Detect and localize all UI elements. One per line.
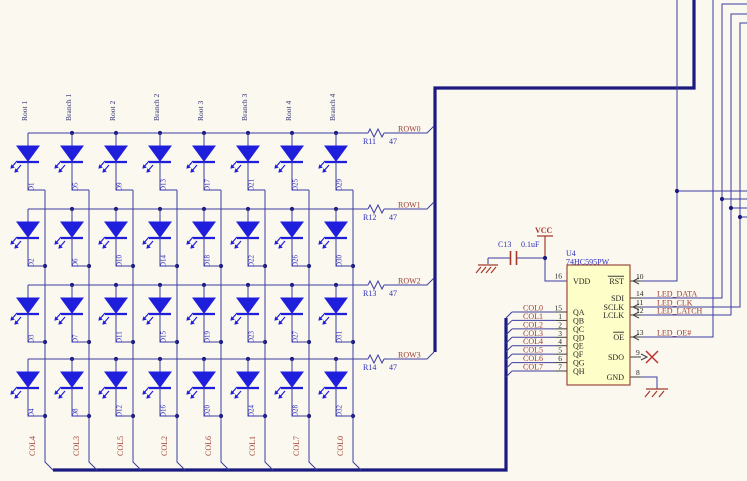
led-symbol <box>149 222 171 237</box>
led-symbol <box>193 146 215 161</box>
led-matrix-schematic: U4 74HC595PW C13 0.1uF VCC Root 1COL4Bra… <box>0 0 747 481</box>
pin-net-label: LED_DATA <box>657 290 697 299</box>
led-designator: D15 <box>160 330 168 343</box>
led-designator: D9 <box>116 182 124 191</box>
led-symbol <box>237 372 259 387</box>
led-symbol <box>237 222 259 237</box>
capacitor-designator: C13 <box>498 240 511 249</box>
led-designator: D7 <box>72 334 80 343</box>
col-wire-bend <box>506 312 512 318</box>
led-symbol <box>105 222 127 237</box>
led-designator: D25 <box>292 178 300 191</box>
pin-name: GND <box>607 373 625 382</box>
led-designator: D1 <box>28 182 36 191</box>
led-symbol <box>61 222 83 237</box>
led-designator: D12 <box>116 404 124 417</box>
column-wire <box>353 190 361 470</box>
led-designator: D31 <box>336 330 344 343</box>
column-net-label: COL4 <box>28 436 37 456</box>
led-designator: D22 <box>248 254 256 267</box>
vcc-label: VCC <box>535 226 553 235</box>
pin-name: SDO <box>608 353 624 362</box>
column-wire <box>45 190 53 470</box>
led-designator: D3 <box>28 334 36 343</box>
column-wire <box>309 190 317 470</box>
row-net-label: ROW0 <box>398 125 421 134</box>
led-designator: D21 <box>248 178 256 191</box>
led-symbol <box>17 372 39 387</box>
led-designator: D13 <box>160 178 168 191</box>
column-net-label: COL0 <box>336 436 345 456</box>
column-net-label: COL7 <box>292 436 301 456</box>
led-designator: D29 <box>336 178 344 191</box>
led-designator: D19 <box>204 330 212 343</box>
led-designator: D14 <box>160 254 168 267</box>
led-symbol <box>325 298 347 313</box>
led-symbol <box>149 146 171 161</box>
pin-number: 7 <box>558 363 562 372</box>
pin-number: 12 <box>636 306 644 315</box>
led-symbol <box>61 298 83 313</box>
pin-name: VDD <box>573 277 591 286</box>
pin-number: 9 <box>636 348 640 357</box>
pin-number: 14 <box>636 289 644 298</box>
pin-net-label: LED_LATCH <box>657 307 703 316</box>
led-symbol <box>149 298 171 313</box>
led-designator: D26 <box>292 254 300 267</box>
led-designator: D30 <box>336 254 344 267</box>
led-symbol <box>325 372 347 387</box>
led-designator: D20 <box>204 404 212 417</box>
ic-part-number: 74HC595PW <box>566 258 610 267</box>
column-net-label: COL5 <box>116 436 125 456</box>
resistor-symbol <box>368 281 384 289</box>
led-symbol <box>61 146 83 161</box>
led-symbol <box>193 222 215 237</box>
led-designator: D5 <box>72 182 80 191</box>
column-wire <box>133 190 141 470</box>
led-designator: D23 <box>248 330 256 343</box>
column-header-label: Branch 3 <box>240 93 249 121</box>
column-header-label: Branch 2 <box>152 93 161 121</box>
led-symbol <box>17 298 39 313</box>
led-symbol <box>193 372 215 387</box>
column-net-label: COL3 <box>72 436 81 456</box>
resistor-designator: R14 <box>363 363 376 372</box>
column-header-label: Root 3 <box>196 101 205 121</box>
led-designator: D28 <box>292 404 300 417</box>
column-wire <box>89 190 97 470</box>
row-net-label: ROW1 <box>398 201 421 210</box>
pin-net-label: LED_OE# <box>657 329 691 338</box>
column-wire <box>221 190 229 470</box>
led-symbol <box>325 222 347 237</box>
column-net-label: COL1 <box>248 436 257 456</box>
pin-name: RST <box>609 277 624 286</box>
led-symbol <box>17 146 39 161</box>
led-designator: D24 <box>248 404 256 417</box>
led-symbol <box>149 372 171 387</box>
led-designator: D8 <box>72 408 80 417</box>
led-designator: D17 <box>204 178 212 191</box>
row-net-label: ROW2 <box>398 277 421 286</box>
led-symbol <box>281 372 303 387</box>
pin-number: 13 <box>636 328 644 337</box>
column-net-label: COL2 <box>160 436 169 456</box>
led-symbol <box>281 222 303 237</box>
led-symbol <box>237 146 259 161</box>
column-header-label: Branch 4 <box>328 93 337 121</box>
resistor-designator: R13 <box>363 289 376 298</box>
resistor-value: 47 <box>389 363 397 372</box>
led-symbol <box>105 298 127 313</box>
led-designator: D27 <box>292 330 300 343</box>
led-designator: D10 <box>116 254 124 267</box>
column-wire <box>265 190 273 470</box>
led-symbol <box>237 298 259 313</box>
column-wire <box>177 190 185 470</box>
resistor-designator: R12 <box>363 213 376 222</box>
led-designator: D11 <box>116 331 124 343</box>
led-symbol <box>193 298 215 313</box>
column-header-label: Root 4 <box>284 101 293 121</box>
capacitor-symbol <box>488 251 545 265</box>
led-symbol <box>281 298 303 313</box>
ground-icon <box>645 389 668 397</box>
pin-name: LCLK <box>603 311 624 320</box>
pin-number: 8 <box>636 368 640 377</box>
led-symbol <box>61 372 83 387</box>
column-net-label: COL6 <box>204 436 213 456</box>
pin-name: OE <box>613 333 624 342</box>
schematic-canvas: U4 74HC595PW C13 0.1uF VCC Root 1COL4Bra… <box>0 0 747 481</box>
row-net-label: ROW3 <box>398 351 421 360</box>
column-header-label: Root 1 <box>20 101 29 121</box>
ground-icon <box>476 265 498 273</box>
row-bus-wire <box>435 0 694 352</box>
led-designator: D2 <box>28 258 36 267</box>
pin-name: QH <box>573 367 585 376</box>
resistor-symbol <box>368 129 384 137</box>
led-symbol <box>17 222 39 237</box>
output-arrow-icon <box>641 354 647 360</box>
pin-number: 16 <box>555 272 563 281</box>
resistor-value: 47 <box>389 137 397 146</box>
led-designator: D32 <box>336 404 344 417</box>
pin-name: SDI <box>611 294 624 303</box>
led-designator: D6 <box>72 258 80 267</box>
led-designator: D18 <box>204 254 212 267</box>
pin-net-label: COL7 <box>523 363 543 372</box>
led-designator: D16 <box>160 404 168 417</box>
led-symbol <box>105 146 127 161</box>
resistor-value: 47 <box>389 289 397 298</box>
led-symbol <box>105 372 127 387</box>
led-designator: D4 <box>28 408 36 417</box>
resistor-symbol <box>368 205 384 213</box>
column-header-label: Root 2 <box>108 101 117 121</box>
led-symbol <box>325 146 347 161</box>
column-header-label: Branch 1 <box>64 93 73 121</box>
led-symbol <box>281 146 303 161</box>
resistor-designator: R11 <box>363 137 376 146</box>
pin-number: 10 <box>636 272 644 281</box>
resistor-symbol <box>368 355 384 363</box>
resistor-value: 47 <box>389 213 397 222</box>
capacitor-value: 0.1uF <box>521 240 540 249</box>
